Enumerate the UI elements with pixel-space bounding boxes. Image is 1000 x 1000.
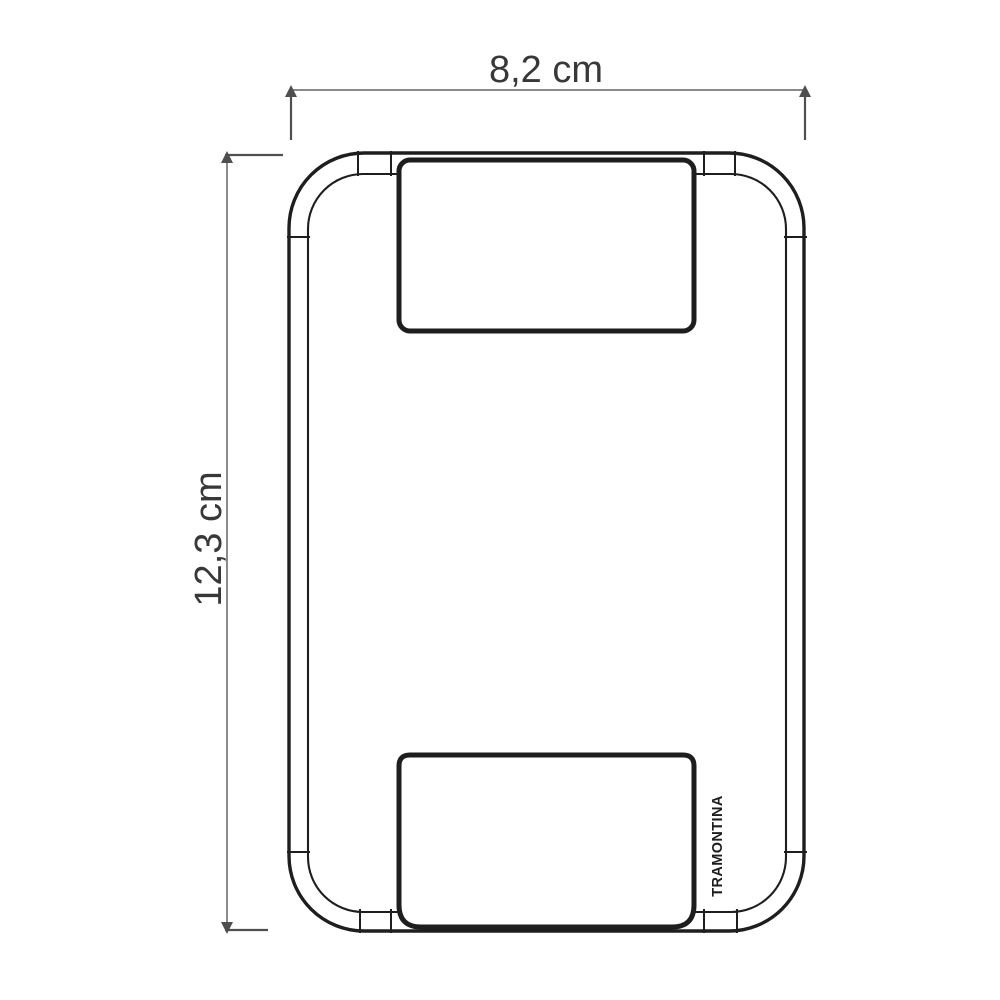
lower-module-opening [399,755,694,927]
height-dimension: 12,3 cm [188,151,283,934]
width-dimension: 8,2 cm [285,49,811,140]
height-dimension-label: 12,3 cm [188,471,230,606]
width-dimension-label: 8,2 cm [489,49,603,91]
technical-drawing: 8,2 cm 12,3 cm [0,0,1000,1000]
arrowhead-top [221,151,233,163]
upper-module-opening [399,160,694,331]
brand-text: TRAMONTINA [710,795,726,897]
plate-outline: TRAMONTINA [287,151,807,933]
arrowhead-bottom [221,922,233,934]
